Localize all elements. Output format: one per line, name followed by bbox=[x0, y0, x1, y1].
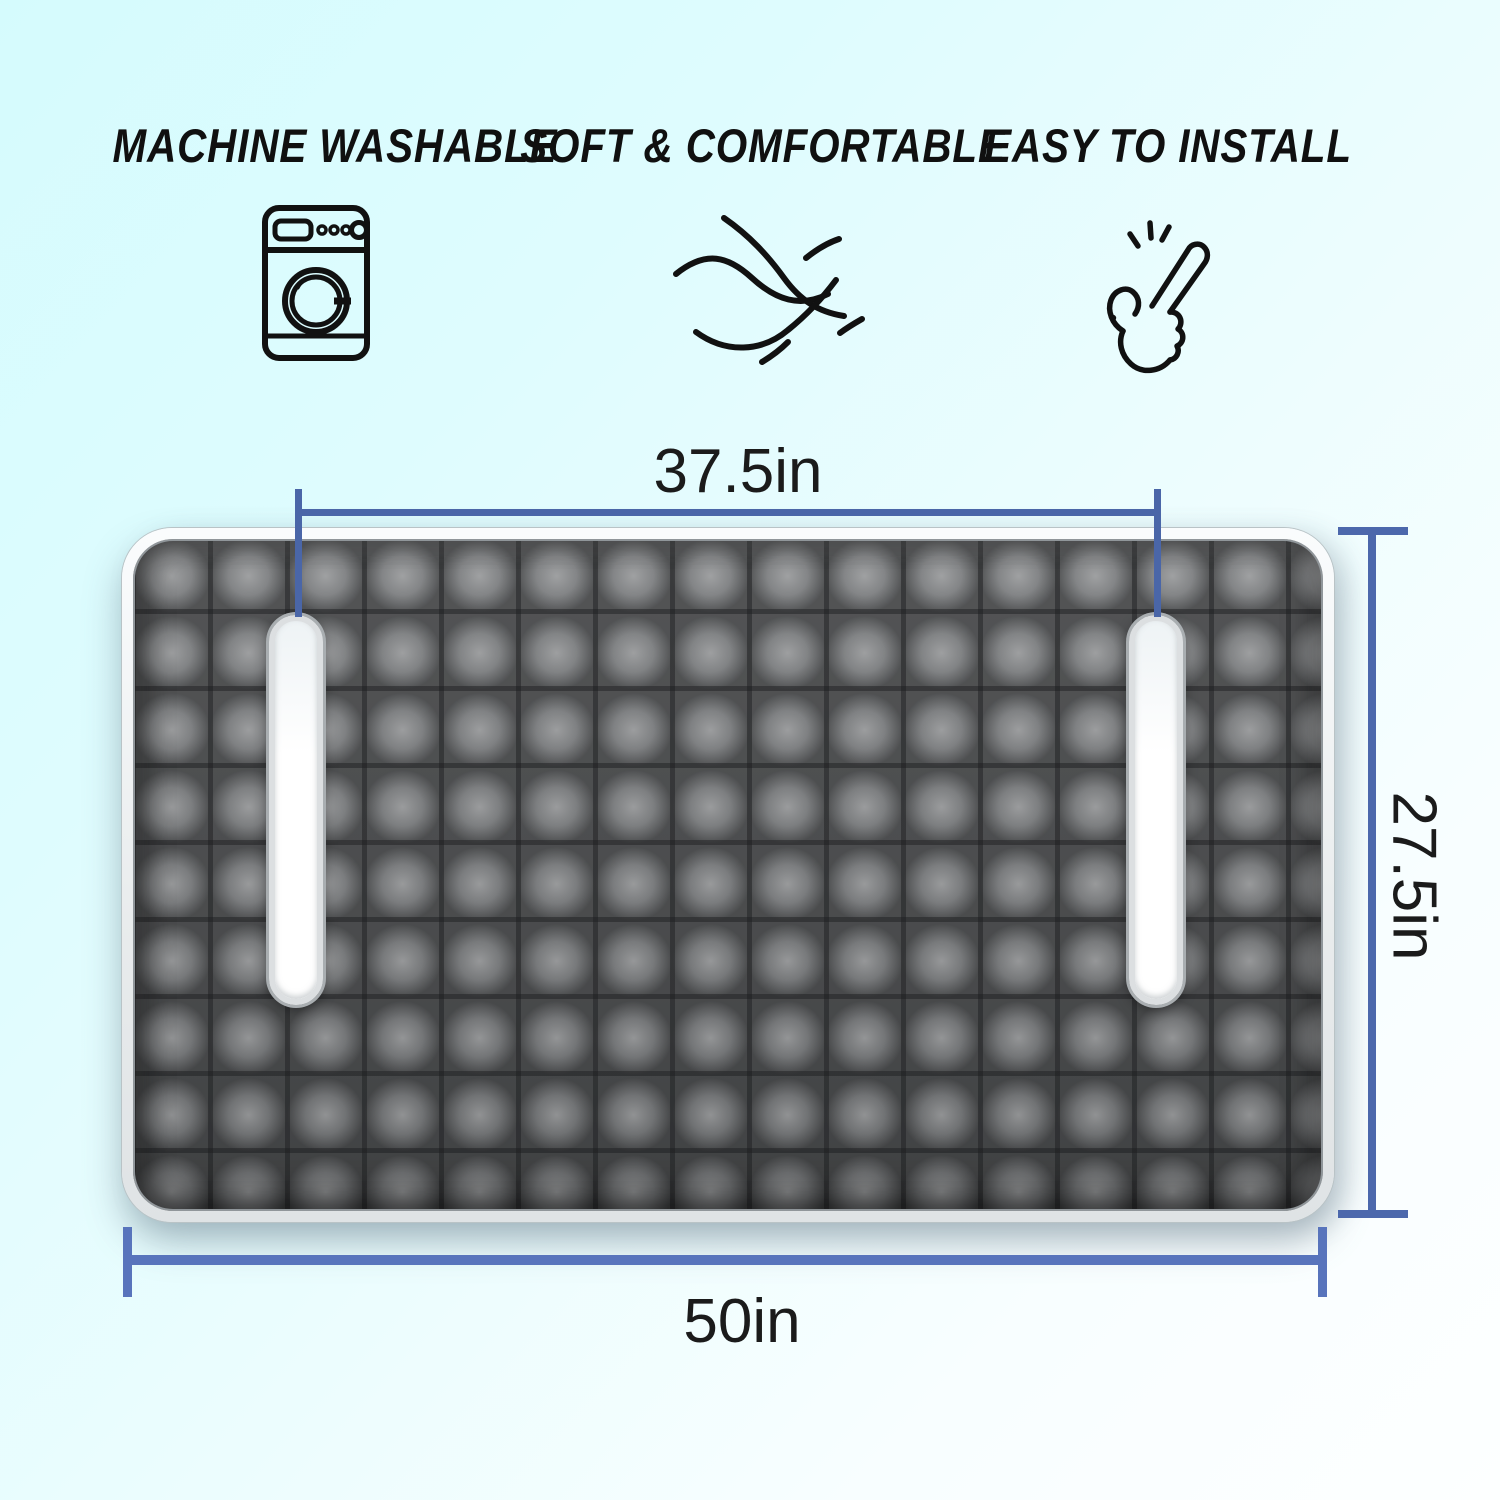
fabric-weave-icon bbox=[666, 212, 866, 372]
feature-label-machine-washable: MACHINE WASHABLE bbox=[113, 118, 558, 173]
feature-label-easy-install: EASY TO INSTALL bbox=[984, 118, 1352, 173]
dimension-line-side-height bbox=[1368, 531, 1376, 1218]
dimension-tick-top-right bbox=[1154, 489, 1161, 617]
dimension-tick-side-bottom bbox=[1338, 1210, 1408, 1218]
dimension-tick-bottom-right bbox=[1318, 1227, 1327, 1297]
dimension-label-side-height: 27.5in bbox=[1379, 792, 1450, 961]
dimension-label-bottom-width: 50in bbox=[683, 1286, 800, 1357]
dimension-line-bottom-width bbox=[127, 1255, 1327, 1265]
feature-label-soft-comfortable: SOFT & COMFORTABLE bbox=[520, 118, 1006, 173]
dimension-tick-side-top bbox=[1338, 527, 1408, 535]
dimension-label-top-width: 37.5in bbox=[654, 436, 823, 507]
product-infographic: MACHINE WASHABLE SOFT & COMFORTABLE EASY… bbox=[0, 0, 1500, 1500]
washing-machine-icon bbox=[261, 204, 371, 362]
dimension-tick-bottom-left bbox=[123, 1227, 132, 1297]
mat-handle-slot-right bbox=[1129, 615, 1183, 1005]
dimension-tick-top-left bbox=[295, 489, 302, 617]
quilted-mat-image bbox=[122, 528, 1334, 1222]
dimension-line-top-width bbox=[298, 509, 1158, 516]
snap-fingers-icon bbox=[1100, 214, 1225, 374]
mat-handle-slot-left bbox=[269, 615, 323, 1005]
